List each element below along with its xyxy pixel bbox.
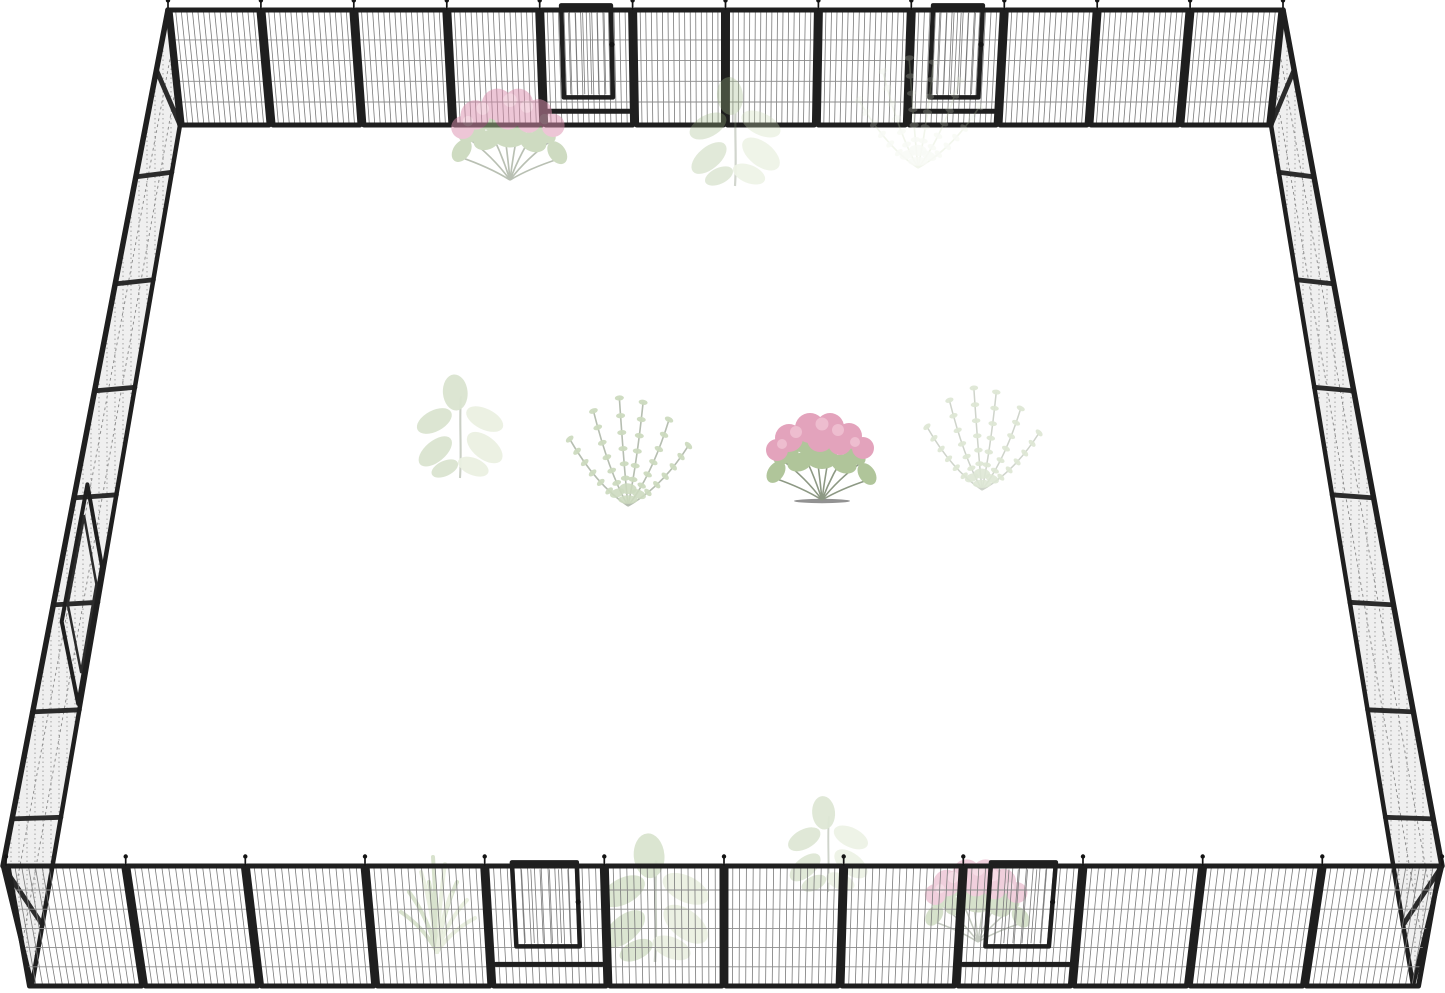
plants-inside-pen [401, 55, 1044, 966]
product-image-canvas [0, 0, 1445, 993]
plant-hydrangea [922, 859, 1034, 942]
plant-zz [565, 395, 694, 506]
plant-broadleaf [413, 373, 509, 481]
plant-zz [922, 385, 1044, 490]
fence-left-wall [1, 10, 180, 985]
fence-front-row [4, 854, 1444, 986]
playpen-product-image [0, 0, 1445, 993]
plant-broadleaf [784, 795, 872, 895]
plant-broadleaf [685, 76, 786, 190]
fence-right-wall [1271, 10, 1444, 985]
plant-hydrangea [763, 413, 881, 503]
